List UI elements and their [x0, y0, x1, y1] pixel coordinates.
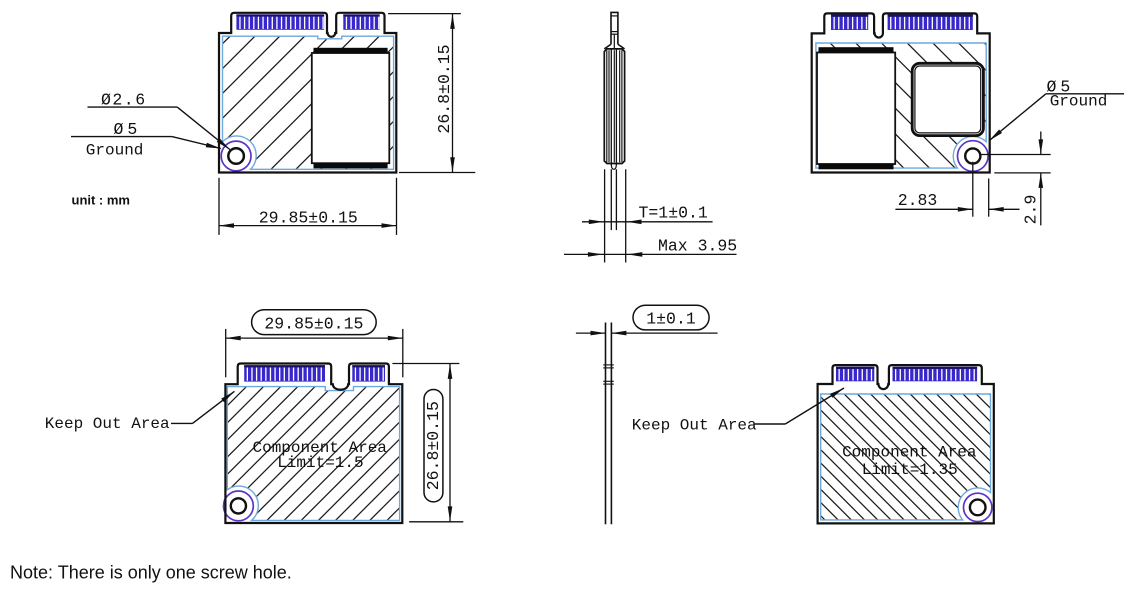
svg-text:26.8±0.15: 26.8±0.15 — [424, 401, 443, 490]
svg-text:1±0.1: 1±0.1 — [646, 310, 696, 329]
svg-text:Note: There is only one screw: Note: There is only one screw hole. — [10, 563, 292, 583]
svg-text:Ground: Ground — [1050, 93, 1108, 111]
svg-text:26.8±0.15: 26.8±0.15 — [435, 44, 454, 133]
svg-text:Limit=1.35: Limit=1.35 — [862, 461, 958, 479]
svg-text:Keep Out Area: Keep Out Area — [632, 416, 757, 434]
svg-text:unit : mm: unit : mm — [72, 193, 131, 208]
svg-text:2.9: 2.9 — [1022, 195, 1041, 225]
svg-text:Ground: Ground — [86, 141, 144, 159]
svg-text:2.83: 2.83 — [898, 191, 938, 210]
svg-text:29.85±0.15: 29.85±0.15 — [264, 314, 363, 333]
svg-text:Limit=1.5: Limit=1.5 — [277, 454, 363, 472]
svg-text:Keep Out Area: Keep Out Area — [45, 415, 170, 433]
svg-text:T=1±0.1: T=1±0.1 — [639, 204, 708, 223]
svg-text:29.85±0.15: 29.85±0.15 — [259, 209, 358, 228]
svg-text:Max 3.95: Max 3.95 — [658, 236, 737, 255]
svg-text:Component Area: Component Area — [842, 443, 977, 461]
